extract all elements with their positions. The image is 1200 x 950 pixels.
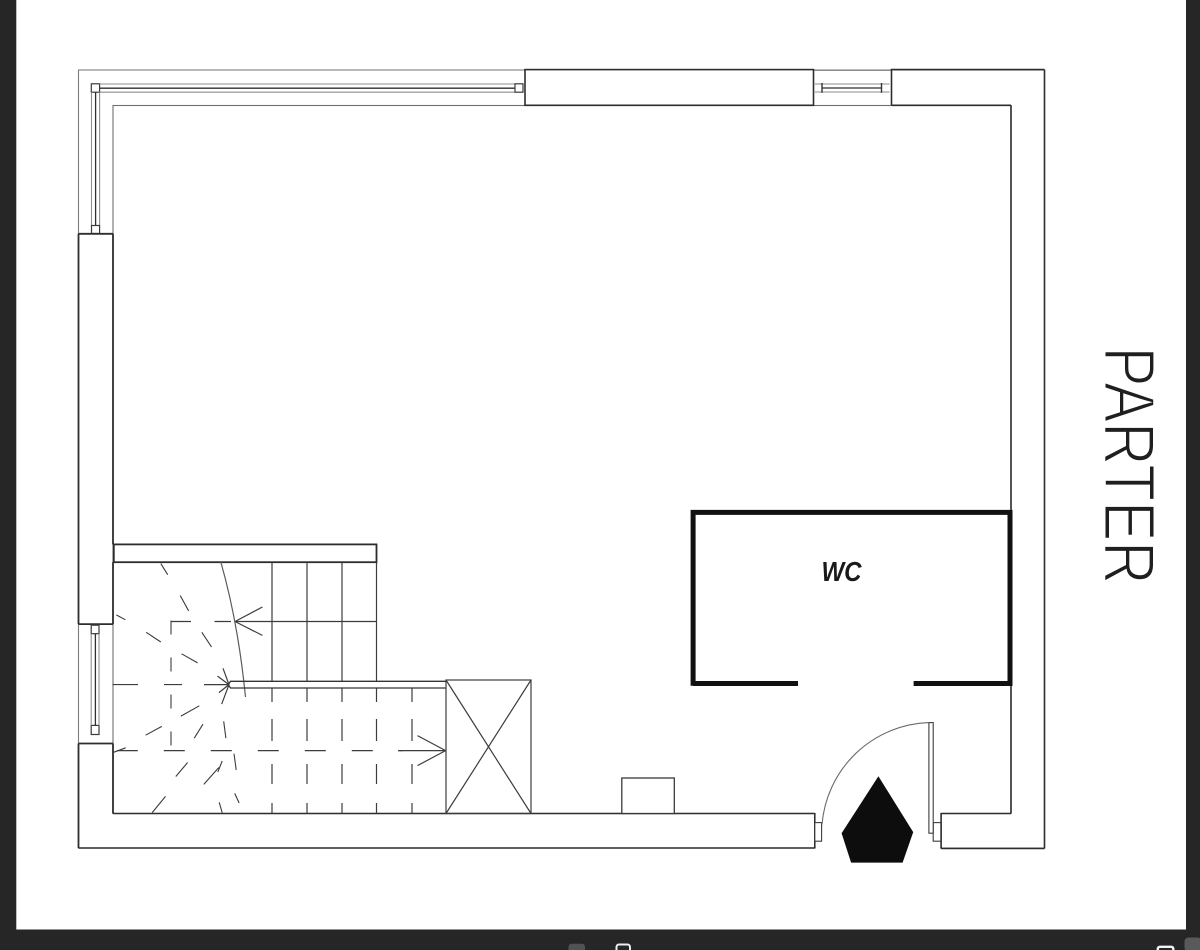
svg-text:PARTER: PARTER bbox=[1089, 347, 1169, 585]
svg-text:WC: WC bbox=[822, 556, 863, 587]
